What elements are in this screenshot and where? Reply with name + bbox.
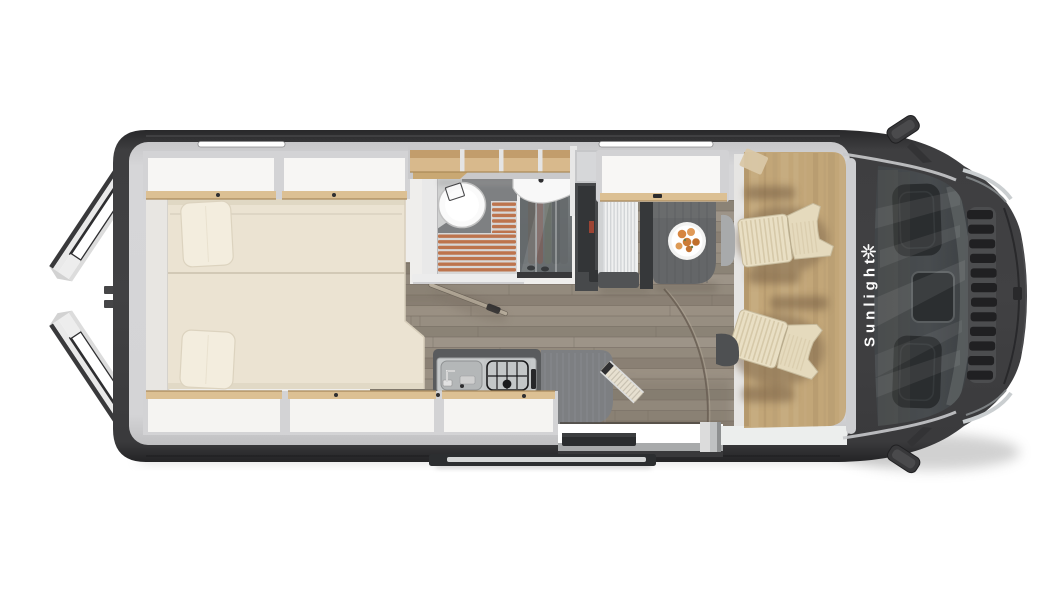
svg-text:Sunlight: Sunlight bbox=[862, 255, 879, 347]
